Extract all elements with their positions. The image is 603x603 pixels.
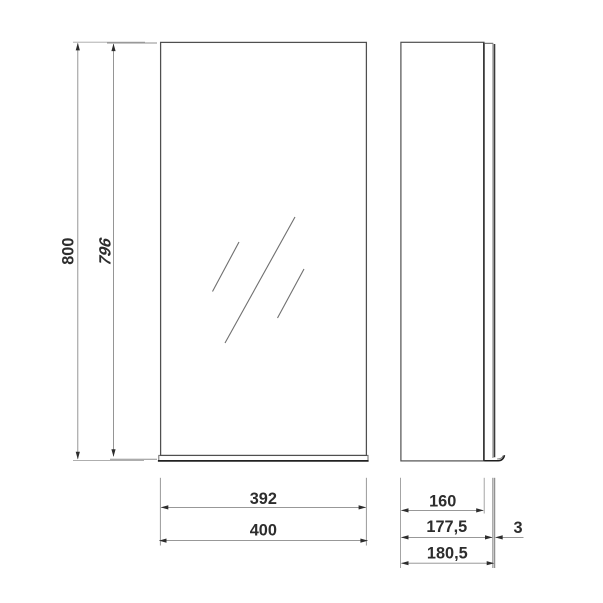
svg-text:3: 3 <box>513 519 522 537</box>
svg-text:180,5: 180,5 <box>427 545 468 563</box>
svg-text:800: 800 <box>59 238 77 265</box>
svg-text:177,5: 177,5 <box>426 518 467 536</box>
svg-text:400: 400 <box>250 522 277 540</box>
svg-text:160: 160 <box>429 493 456 511</box>
svg-text:796: 796 <box>96 235 115 268</box>
svg-text:392: 392 <box>250 490 277 508</box>
